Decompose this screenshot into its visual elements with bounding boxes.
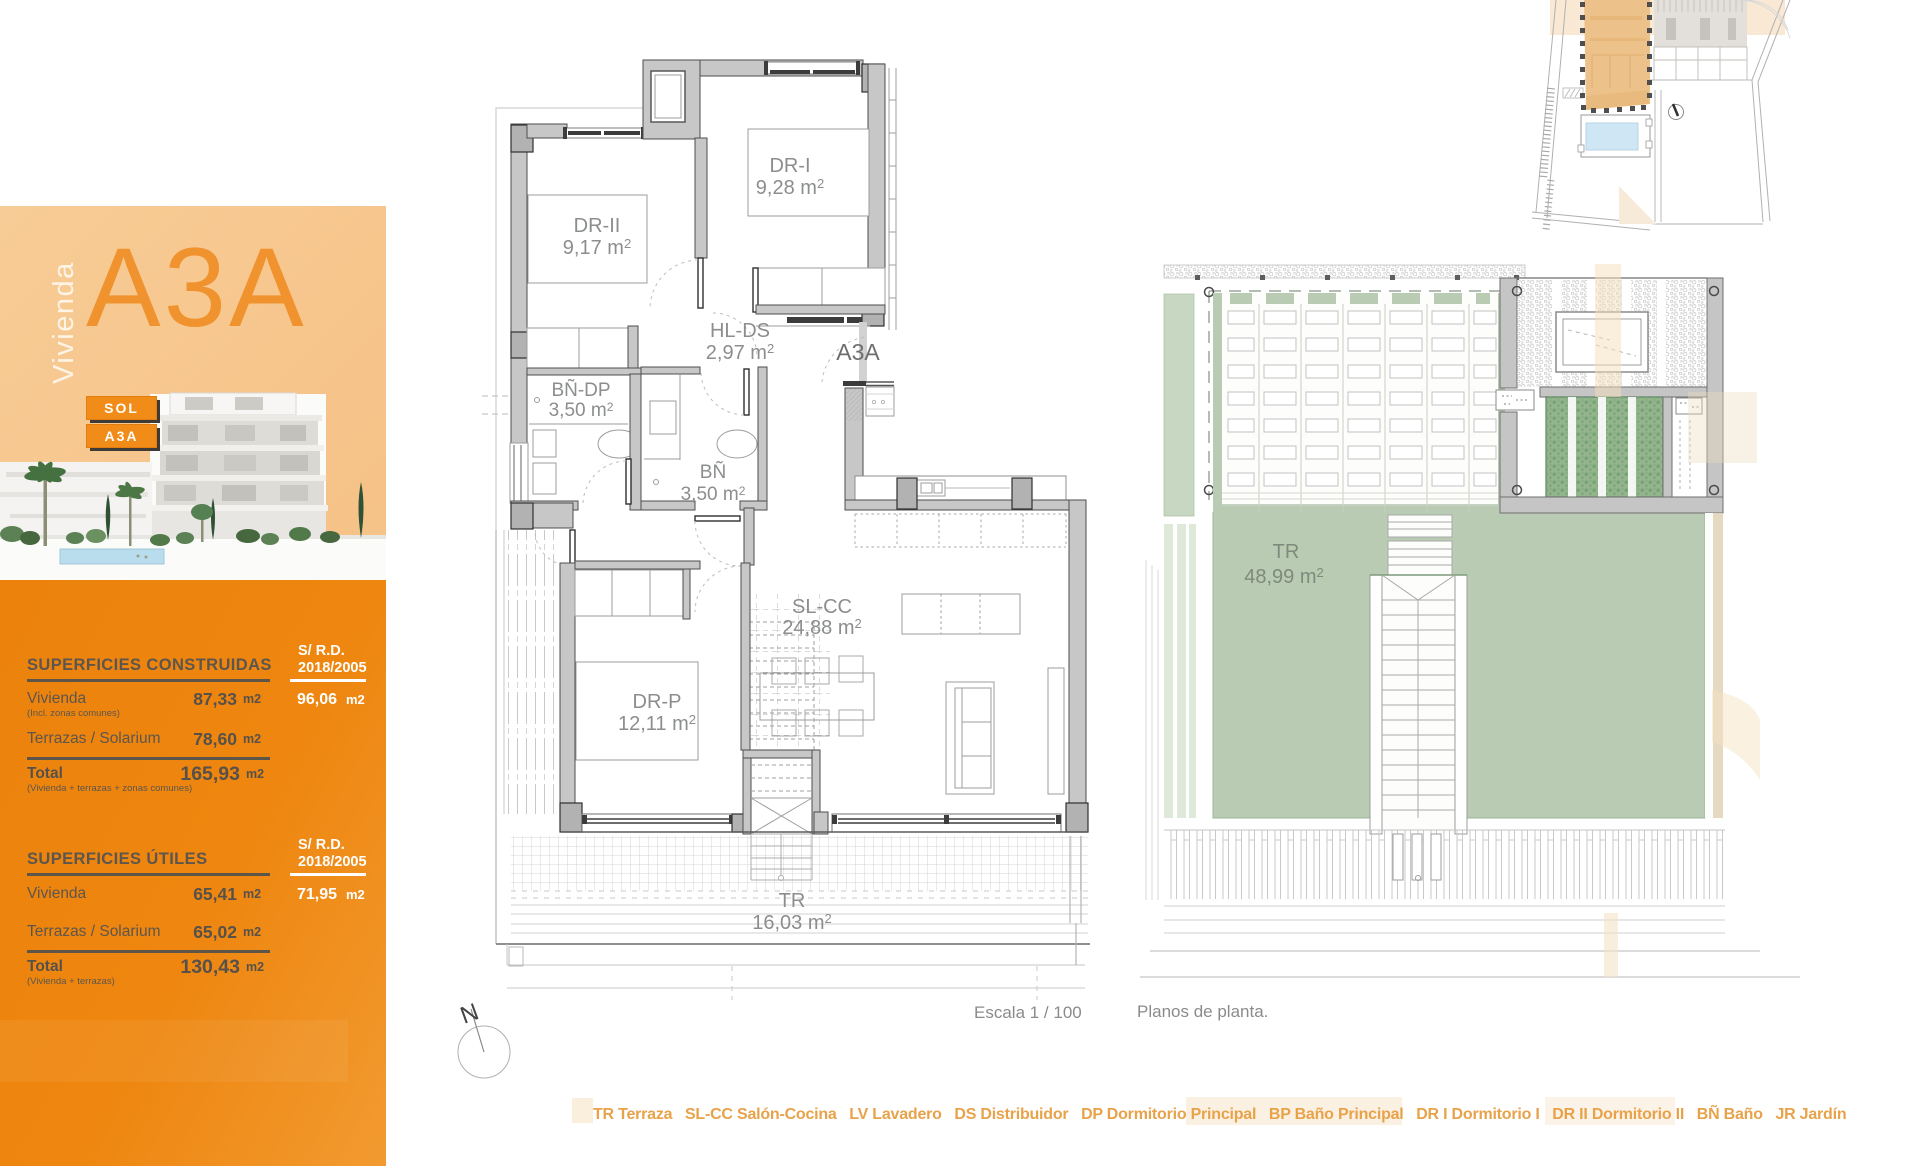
svg-text:DR-II: DR-II xyxy=(574,215,621,237)
svg-text:9,17 m2: 9,17 m2 xyxy=(563,236,631,259)
svg-text:A3A: A3A xyxy=(836,339,880,365)
svg-text:TR: TR xyxy=(779,890,806,912)
svg-text:BÑ: BÑ xyxy=(700,461,726,483)
svg-text:SL-CC: SL-CC xyxy=(792,596,852,618)
svg-text:DR-I: DR-I xyxy=(769,155,810,177)
svg-text:3,50 m2: 3,50 m2 xyxy=(549,400,614,421)
svg-text:12,11 m2: 12,11 m2 xyxy=(618,712,696,735)
svg-text:48,99 m2: 48,99 m2 xyxy=(1244,565,1324,588)
svg-text:2,97 m2: 2,97 m2 xyxy=(706,341,774,364)
svg-text:TR: TR xyxy=(1273,541,1300,563)
svg-text:9,28 m2: 9,28 m2 xyxy=(756,176,824,199)
svg-text:24,88 m2: 24,88 m2 xyxy=(782,616,862,639)
svg-text:BÑ-DP: BÑ-DP xyxy=(551,379,610,401)
svg-text:3,50 m2: 3,50 m2 xyxy=(681,484,746,505)
svg-text:16,03 m2: 16,03 m2 xyxy=(752,911,832,934)
svg-text:DR-P: DR-P xyxy=(633,691,682,713)
svg-text:N: N xyxy=(457,998,483,1029)
svg-text:HL-DS: HL-DS xyxy=(710,320,770,342)
